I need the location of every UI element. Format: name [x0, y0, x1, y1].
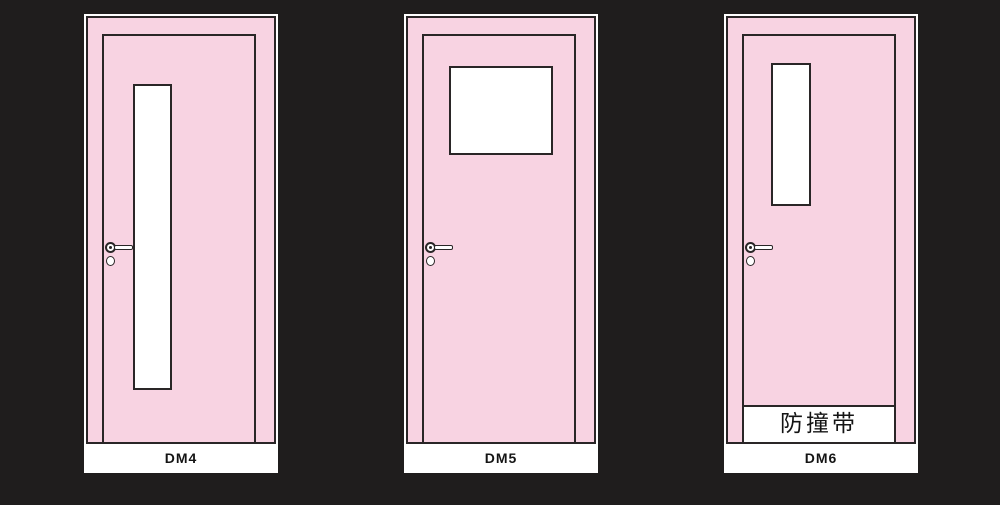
door-diagram-canvas: DM4 DM5 [0, 0, 1000, 505]
door-figure-dm4: DM4 [84, 14, 278, 473]
anti-collision-strip: 防撞带 [744, 405, 894, 442]
handle-lever-icon [434, 245, 453, 250]
door-frame [406, 16, 596, 444]
lock-cylinder-icon [746, 256, 755, 266]
lock-cylinder-icon [426, 256, 435, 266]
handle-lever-icon [114, 245, 133, 250]
door-frame: 防撞带 [726, 16, 916, 444]
door-code-label: DM4 [84, 444, 278, 473]
door-window-glass [133, 84, 172, 390]
door-leaf: 防撞带 [742, 34, 896, 442]
handle-lever-icon [754, 245, 773, 250]
door-code-label: DM5 [404, 444, 598, 473]
door-code-label: DM6 [724, 444, 918, 473]
door-handle [105, 242, 135, 268]
door-leaf [102, 34, 256, 442]
door-figure-dm6: 防撞带 DM6 [724, 14, 918, 473]
door-handle [425, 242, 455, 268]
door-handle [745, 242, 775, 268]
door-figure-dm5: DM5 [404, 14, 598, 473]
door-frame [86, 16, 276, 444]
lock-cylinder-icon [106, 256, 115, 266]
door-window-glass [449, 66, 553, 155]
door-leaf [422, 34, 576, 442]
door-window-glass [771, 63, 811, 206]
anti-collision-strip-label: 防撞带 [780, 411, 858, 437]
